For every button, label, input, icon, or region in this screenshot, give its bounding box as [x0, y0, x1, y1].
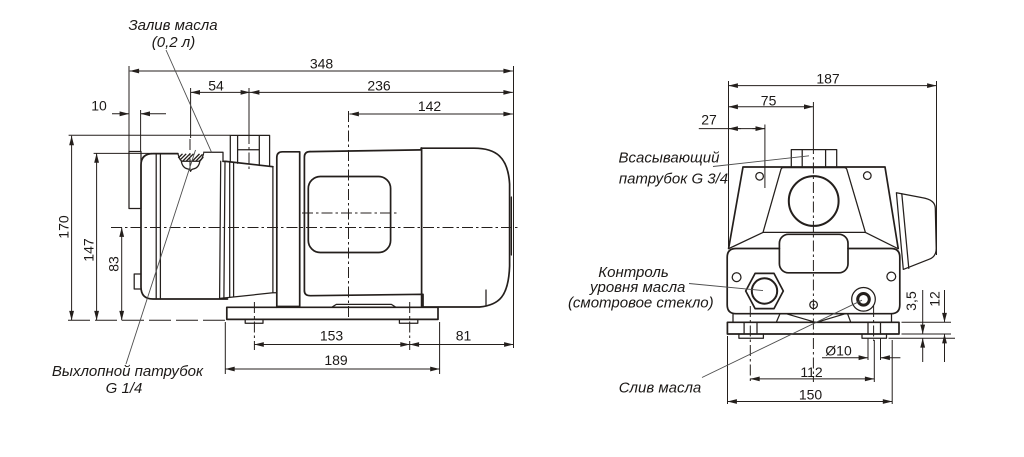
svg-text:189: 189 — [324, 352, 348, 368]
svg-text:112: 112 — [800, 364, 823, 380]
svg-text:(0,2 л): (0,2 л) — [152, 34, 195, 51]
svg-text:Ø10: Ø10 — [825, 343, 852, 359]
svg-text:Выхлопной патрубок: Выхлопной патрубок — [52, 363, 204, 380]
svg-text:150: 150 — [799, 387, 823, 403]
svg-text:уровня масла: уровня масла — [589, 279, 685, 296]
svg-text:3,5: 3,5 — [903, 291, 919, 311]
svg-text:170: 170 — [55, 215, 71, 239]
svg-text:Всасывающий: Всасывающий — [619, 150, 721, 167]
svg-text:G 1/4: G 1/4 — [106, 380, 143, 397]
svg-text:348: 348 — [310, 55, 334, 71]
svg-text:54: 54 — [208, 77, 224, 93]
svg-text:236: 236 — [367, 77, 391, 93]
svg-text:27: 27 — [701, 111, 717, 127]
svg-text:Залив масла: Залив масла — [128, 17, 217, 34]
svg-text:10: 10 — [91, 98, 107, 114]
svg-text:12: 12 — [927, 291, 943, 307]
svg-text:патрубок G 3/4: патрубок G 3/4 — [619, 171, 728, 188]
svg-text:(смотровое стекло): (смотровое стекло) — [568, 295, 714, 312]
svg-text:147: 147 — [80, 238, 96, 262]
svg-text:75: 75 — [761, 93, 777, 109]
svg-text:Слив масла: Слив масла — [619, 380, 702, 397]
svg-text:153: 153 — [320, 328, 344, 344]
svg-text:187: 187 — [816, 70, 840, 86]
svg-text:83: 83 — [105, 256, 121, 272]
svg-text:81: 81 — [456, 328, 472, 344]
svg-text:142: 142 — [418, 98, 442, 114]
